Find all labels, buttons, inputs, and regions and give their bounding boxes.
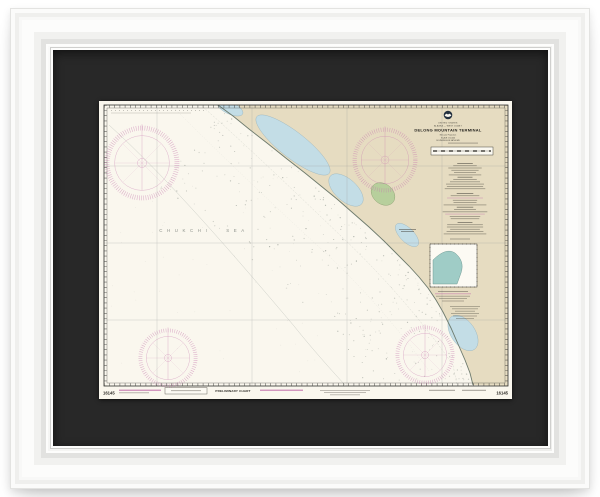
preliminary-chart-label: PRELIMINARY CHART bbox=[215, 389, 250, 393]
chart-drawing: UNITED STATES ALASKA — WEST COAST DELONG… bbox=[99, 101, 512, 399]
picture-frame: UNITED STATES ALASKA — WEST COAST DELONG… bbox=[10, 8, 590, 489]
terminal-inset bbox=[430, 239, 477, 288]
mat-board: UNITED STATES ALASKA — WEST COAST DELONG… bbox=[53, 50, 548, 446]
bottom-margin: 16145 PRELIMINARY CHART bbox=[103, 388, 509, 396]
bottom-center-notes bbox=[320, 390, 370, 395]
scale-label: SCALE 1:50,000 bbox=[441, 136, 455, 139]
sea-name-label: CHUKCHI SEA bbox=[159, 228, 249, 233]
nautical-chart-paper: UNITED STATES ALASKA — WEST COAST DELONG… bbox=[99, 101, 512, 399]
compass-rose bbox=[107, 124, 177, 198]
soundings-label: SOUNDINGS IN FATHOMS bbox=[436, 139, 460, 142]
chart-title: DELONG MOUNTAIN TERMINAL bbox=[414, 128, 482, 133]
country-label: UNITED STATES bbox=[438, 122, 458, 125]
inset-water bbox=[433, 251, 462, 284]
land-layer bbox=[215, 101, 508, 386]
wall-background: UNITED STATES ALASKA — WEST COAST DELONG… bbox=[0, 0, 600, 497]
compass-rose bbox=[140, 327, 195, 385]
chart-number-bottom-right: 16145 bbox=[496, 391, 508, 396]
projection-label: Mercator Projection bbox=[440, 134, 456, 137]
chart-number-bottom-left: 16145 bbox=[103, 391, 115, 396]
compass-rose bbox=[397, 324, 452, 382]
